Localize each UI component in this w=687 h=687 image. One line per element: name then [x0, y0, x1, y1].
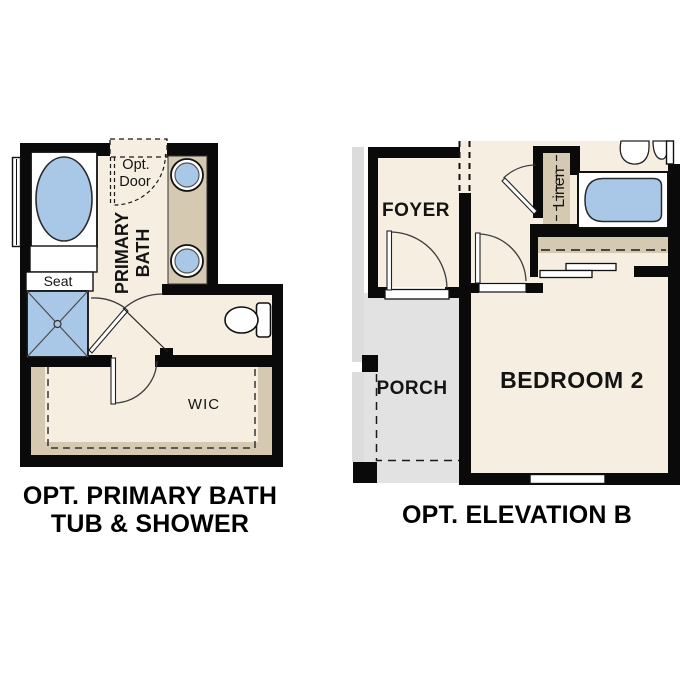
front-door-threshold: [385, 290, 449, 300]
sink-bowl: [620, 141, 649, 164]
opt-door-opening: [110, 139, 167, 157]
shower-counter: [30, 246, 97, 272]
vanity-sink-1-basin: [175, 163, 199, 187]
wic-door-leaf: [111, 358, 116, 404]
bedroom-label: BEDROOM 2: [500, 367, 644, 393]
bathtub: [585, 179, 662, 222]
bedroom-window: [530, 475, 605, 484]
porch-label: PORCH: [376, 378, 447, 399]
closet-bypass-door-1: [566, 264, 616, 271]
bedroom-door-leaf: [476, 233, 481, 283]
bathtub: [36, 157, 92, 241]
foyer-label: FOYER: [382, 200, 450, 221]
seat-label: Seat: [44, 273, 73, 289]
front-door-leaf: [387, 231, 392, 290]
left-plan-caption-line1: OPT. PRIMARY BATH: [0, 482, 300, 510]
left-plan-caption: OPT. PRIMARY BATH TUB & SHOWER: [0, 482, 300, 538]
wall-cut-double-line: [667, 141, 674, 164]
bedroom-door-threshold: [479, 284, 526, 293]
primary-bath-label-line1: PRIMARY: [112, 212, 132, 294]
opt-door-label-line2: Door: [119, 174, 151, 190]
linen-label: Linen: [551, 168, 568, 207]
siding-strip-upper: [352, 147, 364, 362]
primary-bath-label-line2: BATH: [133, 229, 153, 278]
siding-strip-lower: [352, 372, 364, 462]
shower-drain: [54, 321, 61, 328]
wic-label: WIC: [188, 396, 220, 413]
vanity-sink-2-basin: [175, 249, 199, 273]
toilet-bowl: [225, 307, 258, 333]
left-floor-plan: Opt. Door Seat: [13, 139, 284, 467]
left-plan-caption-line2: TUB & SHOWER: [0, 510, 300, 538]
opt-door-label-line1: Opt.: [122, 157, 149, 173]
floor-plan-canvas: Opt. Door Seat: [0, 0, 687, 687]
floor-plan-page: Opt. Door Seat: [0, 0, 687, 687]
closet-bypass-door-2: [540, 271, 592, 278]
right-floor-plan: Linen FOYER PO: [352, 141, 680, 485]
right-plan-caption-text: OPT. ELEVATION B: [352, 501, 682, 529]
right-plan-caption: OPT. ELEVATION B: [352, 501, 682, 529]
